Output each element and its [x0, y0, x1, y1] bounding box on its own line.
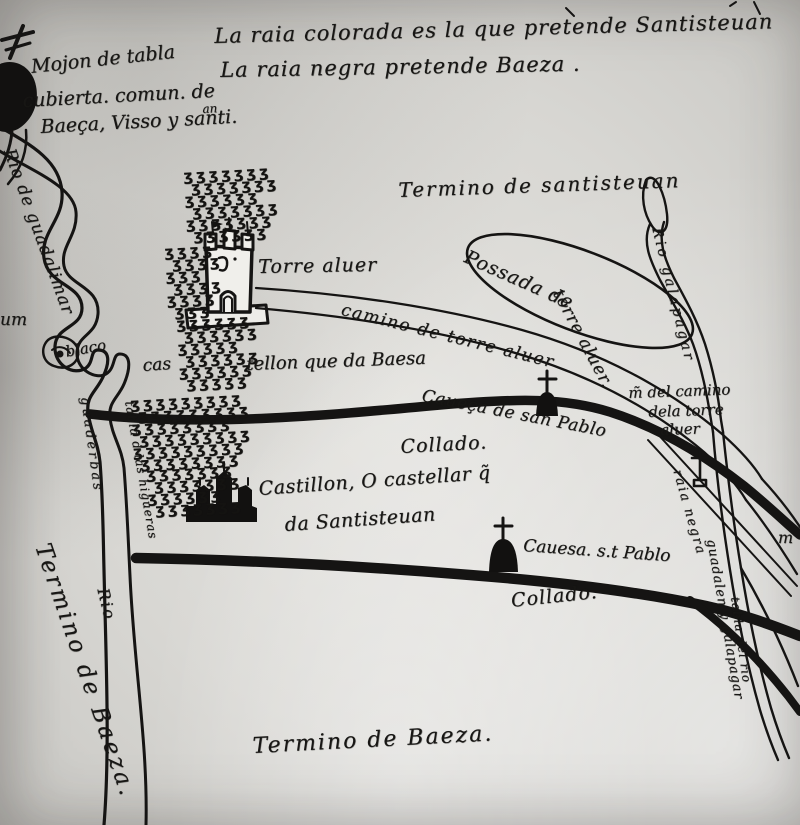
boundary-raia-lower — [136, 558, 800, 712]
hill-hatching: ʒʒʒʒʒʒʒʒʒʒʒʒʒʒʒʒʒʒʒʒʒʒʒʒʒʒʒʒʒʒʒʒʒʒʒʒʒʒʒʒ — [183, 165, 282, 242]
manuscript-map: ʒʒʒʒʒʒʒʒʒʒʒʒʒʒʒʒʒʒʒʒʒʒʒʒʒʒʒʒʒʒʒʒʒʒʒʒʒʒʒʒ… — [0, 0, 800, 825]
label-mojon-camino-line-2: dela torre — [648, 400, 724, 421]
hill-hatching: ʒʒʒʒʒʒʒʒʒʒʒʒʒʒʒʒʒʒʒʒʒʒʒʒʒʒʒʒʒʒʒʒʒʒ — [176, 314, 262, 390]
label-um-fragment: um — [0, 310, 27, 330]
mojon-note-superscript: an — [202, 101, 218, 116]
river-guadalimar — [0, 126, 146, 825]
label-m-fragment: m — [778, 528, 793, 547]
label-torre-aluer: Torre aluer — [258, 254, 377, 278]
hill-hatching: ʒʒʒʒʒʒʒʒʒʒʒʒʒʒʒʒʒʒʒʒʒʒʒʒʒʒʒ — [146, 463, 244, 516]
label-collado-upper: Collado. — [400, 431, 488, 458]
label-mojon-camino-line-1: m̃ del camino — [628, 380, 731, 402]
label-castellon-prefix: cas — [142, 354, 172, 376]
label-mojon-camino-line-3: aluer — [660, 420, 700, 439]
hill-hatching: ʒʒʒʒʒʒʒʒʒʒʒʒʒʒʒʒʒʒʒʒʒʒ — [164, 243, 225, 318]
hill-hatching: ʒʒʒʒʒʒʒʒʒʒʒʒʒʒʒʒʒʒʒʒʒʒʒʒʒʒʒʒʒʒʒʒʒʒʒʒʒʒʒʒ… — [130, 392, 254, 470]
cross-cabeza-st-pablo — [489, 518, 518, 572]
